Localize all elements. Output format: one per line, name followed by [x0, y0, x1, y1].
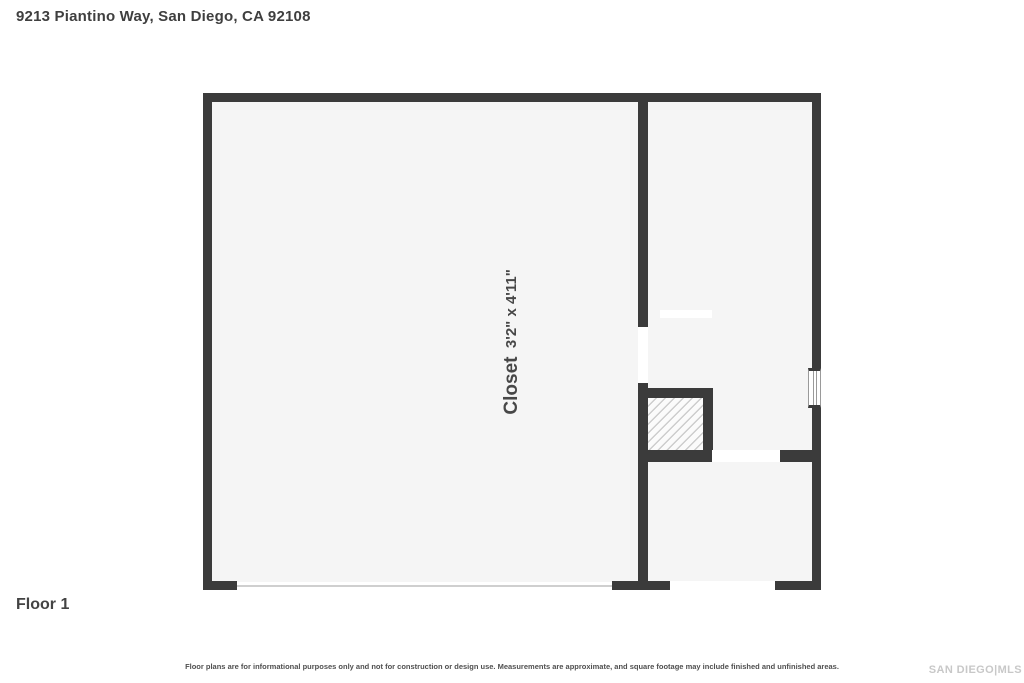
- foyer-porch-wall-right: [780, 450, 812, 462]
- room-closet: Closet 3'2" x 4'11": [203, 93, 290, 226]
- closet-interior: Closet 3'2" x 4'11": [211, 101, 813, 582]
- garage-door-line: [237, 585, 612, 587]
- floor-plan: Garage 18'2" x 20'5" Stairs (Up) Foyer 7…: [203, 93, 821, 590]
- closet-dimensions: 3'2" x 4'11": [503, 269, 522, 348]
- outer-wall-right: [812, 93, 821, 590]
- window-symbol: [808, 368, 821, 408]
- outer-wall-bottom-middle: [612, 581, 670, 590]
- garage-right-wall-lower: [638, 383, 648, 581]
- garage-right-wall-upper: [638, 102, 648, 327]
- closet-name: Closet: [500, 356, 524, 414]
- foyer-porch-wall-left: [638, 450, 712, 462]
- window-pane-line: [813, 371, 817, 405]
- outer-wall-top: [203, 93, 821, 102]
- porch-entry-opening: [670, 581, 775, 590]
- garage-foyer-door-opening: [638, 327, 648, 383]
- outer-wall-bottom-left: [203, 581, 237, 590]
- front-door-opening: [712, 450, 780, 462]
- disclaimer-text: Floor plans are for informational purpos…: [185, 662, 839, 671]
- outer-wall-bottom-right: [775, 581, 812, 590]
- outer-wall-left: [203, 93, 212, 590]
- page-title: 9213 Piantino Way, San Diego, CA 92108: [16, 8, 311, 25]
- mls-watermark: SAN DIEGO|MLS: [929, 664, 1022, 676]
- closet-label: Closet 3'2" x 4'11": [500, 269, 524, 414]
- floor-label: Floor 1: [16, 596, 69, 614]
- closet-door-opening: [660, 310, 712, 318]
